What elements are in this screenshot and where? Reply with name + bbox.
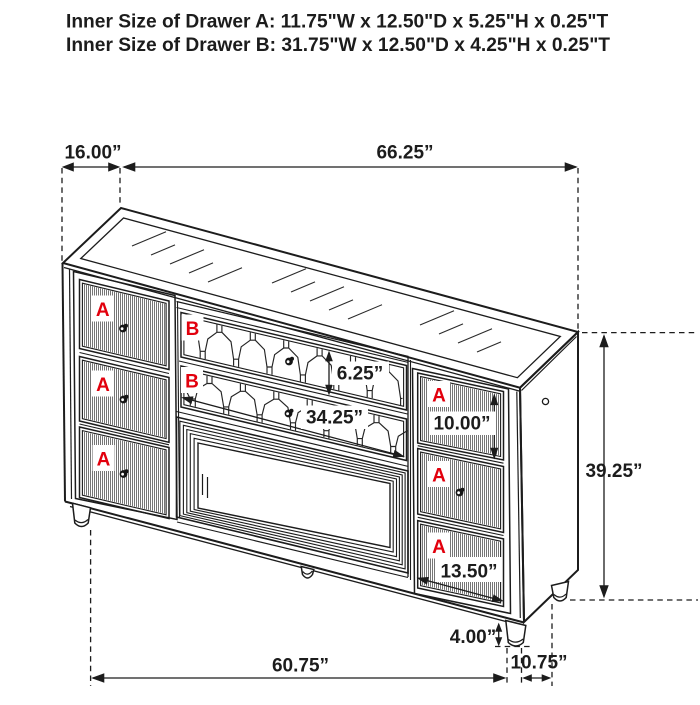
svg-text:A: A [97,450,111,471]
svg-text:10.00”: 10.00” [433,414,490,435]
svg-text:Inner Size of Drawer B: 31.75": Inner Size of Drawer B: 31.75"W x 12.50"… [66,35,610,56]
svg-text:66.25”: 66.25” [376,143,433,164]
svg-text:Inner Size of Drawer A: 11.75": Inner Size of Drawer A: 11.75"W x 12.50"… [66,12,609,33]
svg-text:34.25”: 34.25” [306,408,363,429]
svg-text:B: B [186,319,200,340]
svg-text:6.25”: 6.25” [337,364,383,385]
svg-text:4.00”: 4.00” [450,627,496,648]
svg-text:A: A [432,466,446,487]
svg-text:A: A [96,375,110,396]
svg-text:A: A [432,537,446,558]
svg-text:39.25”: 39.25” [585,461,642,482]
svg-text:B: B [185,372,199,393]
svg-text:13.50”: 13.50” [440,562,497,583]
svg-text:A: A [96,300,110,321]
svg-text:A: A [432,386,446,407]
svg-text:16.00”: 16.00” [64,143,121,164]
svg-text:10.75”: 10.75” [510,653,567,674]
svg-text:60.75”: 60.75” [272,656,329,677]
